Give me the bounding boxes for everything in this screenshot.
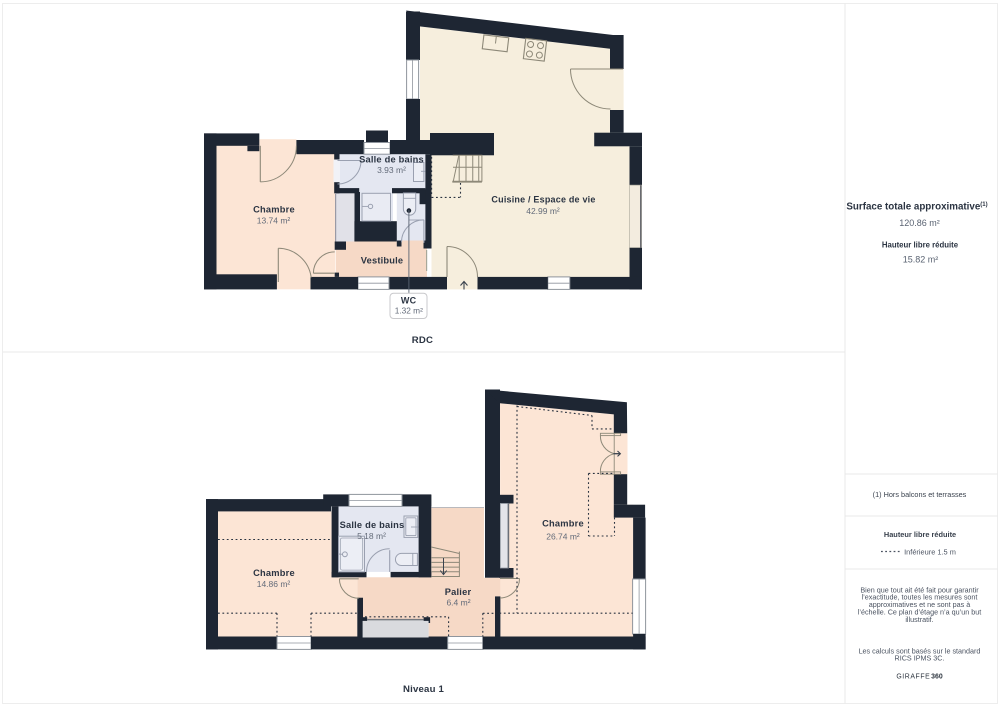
svg-text:Chambre: Chambre xyxy=(542,518,584,528)
svg-text:3.93 m²: 3.93 m² xyxy=(377,165,406,175)
svg-text:Palier: Palier xyxy=(445,587,472,597)
svg-text:6.4 m²: 6.4 m² xyxy=(446,598,470,608)
svg-text:Hauteur libre réduite: Hauteur libre réduite xyxy=(882,241,959,250)
svg-text:Inférieure 1.5 m: Inférieure 1.5 m xyxy=(904,547,956,556)
svg-text:1.32 m²: 1.32 m² xyxy=(395,306,423,316)
svg-text:(1) Hors balcons et terrasses: (1) Hors balcons et terrasses xyxy=(873,490,967,499)
svg-text:Salle de bains: Salle de bains xyxy=(359,154,424,164)
svg-text:5.18 m²: 5.18 m² xyxy=(357,531,386,541)
svg-text:Chambre: Chambre xyxy=(253,568,295,578)
svg-text:Surface totale approximative(1: Surface totale approximative(1) xyxy=(846,202,987,213)
svg-text:42.99 m²: 42.99 m² xyxy=(526,206,560,216)
svg-text:Vestibule: Vestibule xyxy=(361,256,404,266)
svg-text:RDC: RDC xyxy=(412,335,433,346)
svg-text:RICS IPMS 3C.: RICS IPMS 3C. xyxy=(895,654,945,663)
svg-text:Chambre: Chambre xyxy=(253,205,295,215)
svg-text:Salle de bains: Salle de bains xyxy=(340,520,405,530)
svg-text:14.86 m²: 14.86 m² xyxy=(257,579,291,589)
svg-text:26.74 m²: 26.74 m² xyxy=(546,531,580,541)
svg-text:Hauteur libre réduite: Hauteur libre réduite xyxy=(884,530,956,539)
svg-text:illustratif.: illustratif. xyxy=(905,615,933,624)
svg-text:120.86 m²: 120.86 m² xyxy=(899,218,940,228)
svg-text:15.82 m²: 15.82 m² xyxy=(903,255,939,265)
svg-text:Niveau 1: Niveau 1 xyxy=(403,684,445,695)
svg-text:Cuisine / Espace de vie: Cuisine / Espace de vie xyxy=(491,195,595,205)
svg-text:GIRAFFE360: GIRAFFE360 xyxy=(896,674,943,681)
svg-text:WC: WC xyxy=(401,295,417,305)
svg-text:13.74 m²: 13.74 m² xyxy=(257,216,291,226)
